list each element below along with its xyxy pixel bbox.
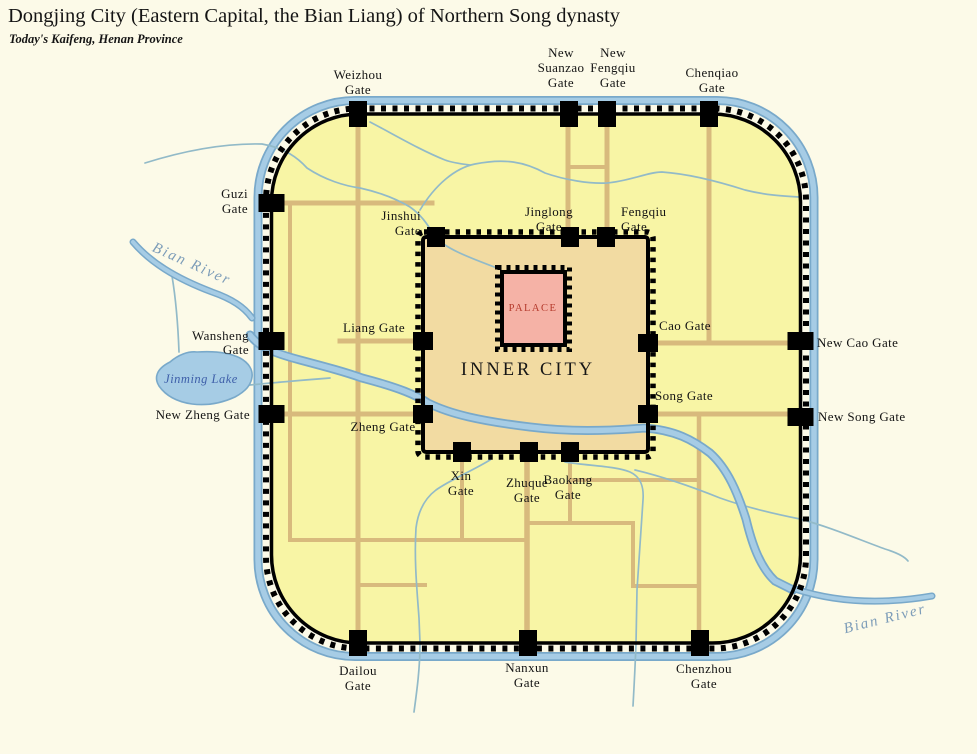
gate-fengqiu (597, 227, 615, 247)
label-song-gate: Song Gate (655, 388, 713, 403)
label-wansheng-gate-2: Gate (223, 342, 249, 357)
label-jinshui-gate-2: Gate (395, 223, 421, 238)
gate-baokang (561, 442, 579, 462)
label-new-suanzao-gate-2: Suanzao (538, 60, 585, 75)
label-guzi-gate: Guzi (221, 186, 248, 201)
label-nanxun-gate: Nanxun (505, 660, 549, 675)
gate-cao (638, 334, 658, 352)
label-fengqiu-gate: Fengqiu (621, 204, 667, 219)
label-new-fengqiu-gate-2: Fengqiu (590, 60, 636, 75)
gate-chenqiao (700, 101, 718, 127)
label-new-fengqiu-gate-3: Gate (600, 75, 626, 90)
label-palace: PALACE (509, 303, 558, 314)
label-jinglong-gate-2: Gate (536, 219, 562, 234)
label-xin-gate: Xin (451, 468, 472, 483)
label-chenqiao-gate-2: Gate (699, 80, 725, 95)
label-wansheng-gate: Wansheng (192, 328, 249, 343)
label-weizhou-gate: Weizhou (334, 67, 383, 82)
label-new-suanzao-gate: New (548, 45, 574, 60)
gate-new-cao (788, 332, 814, 350)
label-chenzhou-gate-2: Gate (691, 676, 717, 691)
label-dailou-gate: Dailou (339, 663, 377, 678)
gate-new-fengqiu (598, 101, 616, 127)
label-jinming-lake: Jinming Lake (164, 372, 238, 386)
gate-chenzhou (691, 630, 709, 656)
gate-zheng (413, 405, 433, 423)
map-canvas: Dongjing City (Eastern Capital, the Bian… (0, 0, 977, 754)
gate-new-song (788, 408, 814, 426)
label-bian-river-southeast: Bian River (842, 601, 928, 637)
gate-new-zheng (259, 405, 285, 423)
label-dailou-gate-2: Gate (345, 678, 371, 693)
label-jinglong-gate: Jinglong (525, 204, 573, 219)
gate-zhuque (520, 442, 538, 462)
label-baokang-gate-2: Gate (555, 487, 581, 502)
city-map-svg: Weizhou Gate New Suanzao Gate New Fengqi… (0, 0, 977, 754)
label-inner-city: INNER CITY (461, 360, 595, 380)
gate-jinglong (561, 227, 579, 247)
label-zheng-gate: Zheng Gate (350, 419, 415, 434)
gate-weizhou (349, 101, 367, 127)
label-new-zheng-gate: New Zheng Gate (156, 407, 250, 422)
label-chenqiao-gate: Chenqiao (685, 65, 738, 80)
label-new-fengqiu-gate: New (600, 45, 626, 60)
label-zhuque-gate-2: Gate (514, 490, 540, 505)
label-cao-gate: Cao Gate (659, 318, 711, 333)
label-zhuque-gate: Zhuque (506, 475, 548, 490)
label-baokang-gate: Baokang (543, 472, 592, 487)
gate-liang (413, 332, 433, 350)
gate-new-suanzao (560, 101, 578, 127)
label-weizhou-gate-2: Gate (345, 82, 371, 97)
label-xin-gate-2: Gate (448, 483, 474, 498)
label-fengqiu-gate-2: Gate (621, 219, 647, 234)
label-chenzhou-gate: Chenzhou (676, 661, 732, 676)
label-new-song-gate: New Song Gate (818, 409, 906, 424)
label-new-cao-gate: New Cao Gate (817, 335, 898, 350)
gate-song (638, 405, 658, 423)
gate-xin (453, 442, 471, 462)
label-guzi-gate-2: Gate (222, 201, 248, 216)
bian-river-se (795, 589, 932, 601)
label-jinshui-gate: Jinshui (381, 208, 421, 223)
gate-dailou (349, 630, 367, 656)
stream-lake-feed (172, 276, 179, 352)
gate-nanxun (519, 630, 537, 656)
gate-jinshui (427, 227, 445, 247)
label-nanxun-gate-2: Gate (514, 675, 540, 690)
gate-wansheng (259, 332, 285, 350)
label-new-suanzao-gate-3: Gate (548, 75, 574, 90)
label-liang-gate: Liang Gate (343, 320, 405, 335)
gate-guzi (259, 194, 285, 212)
